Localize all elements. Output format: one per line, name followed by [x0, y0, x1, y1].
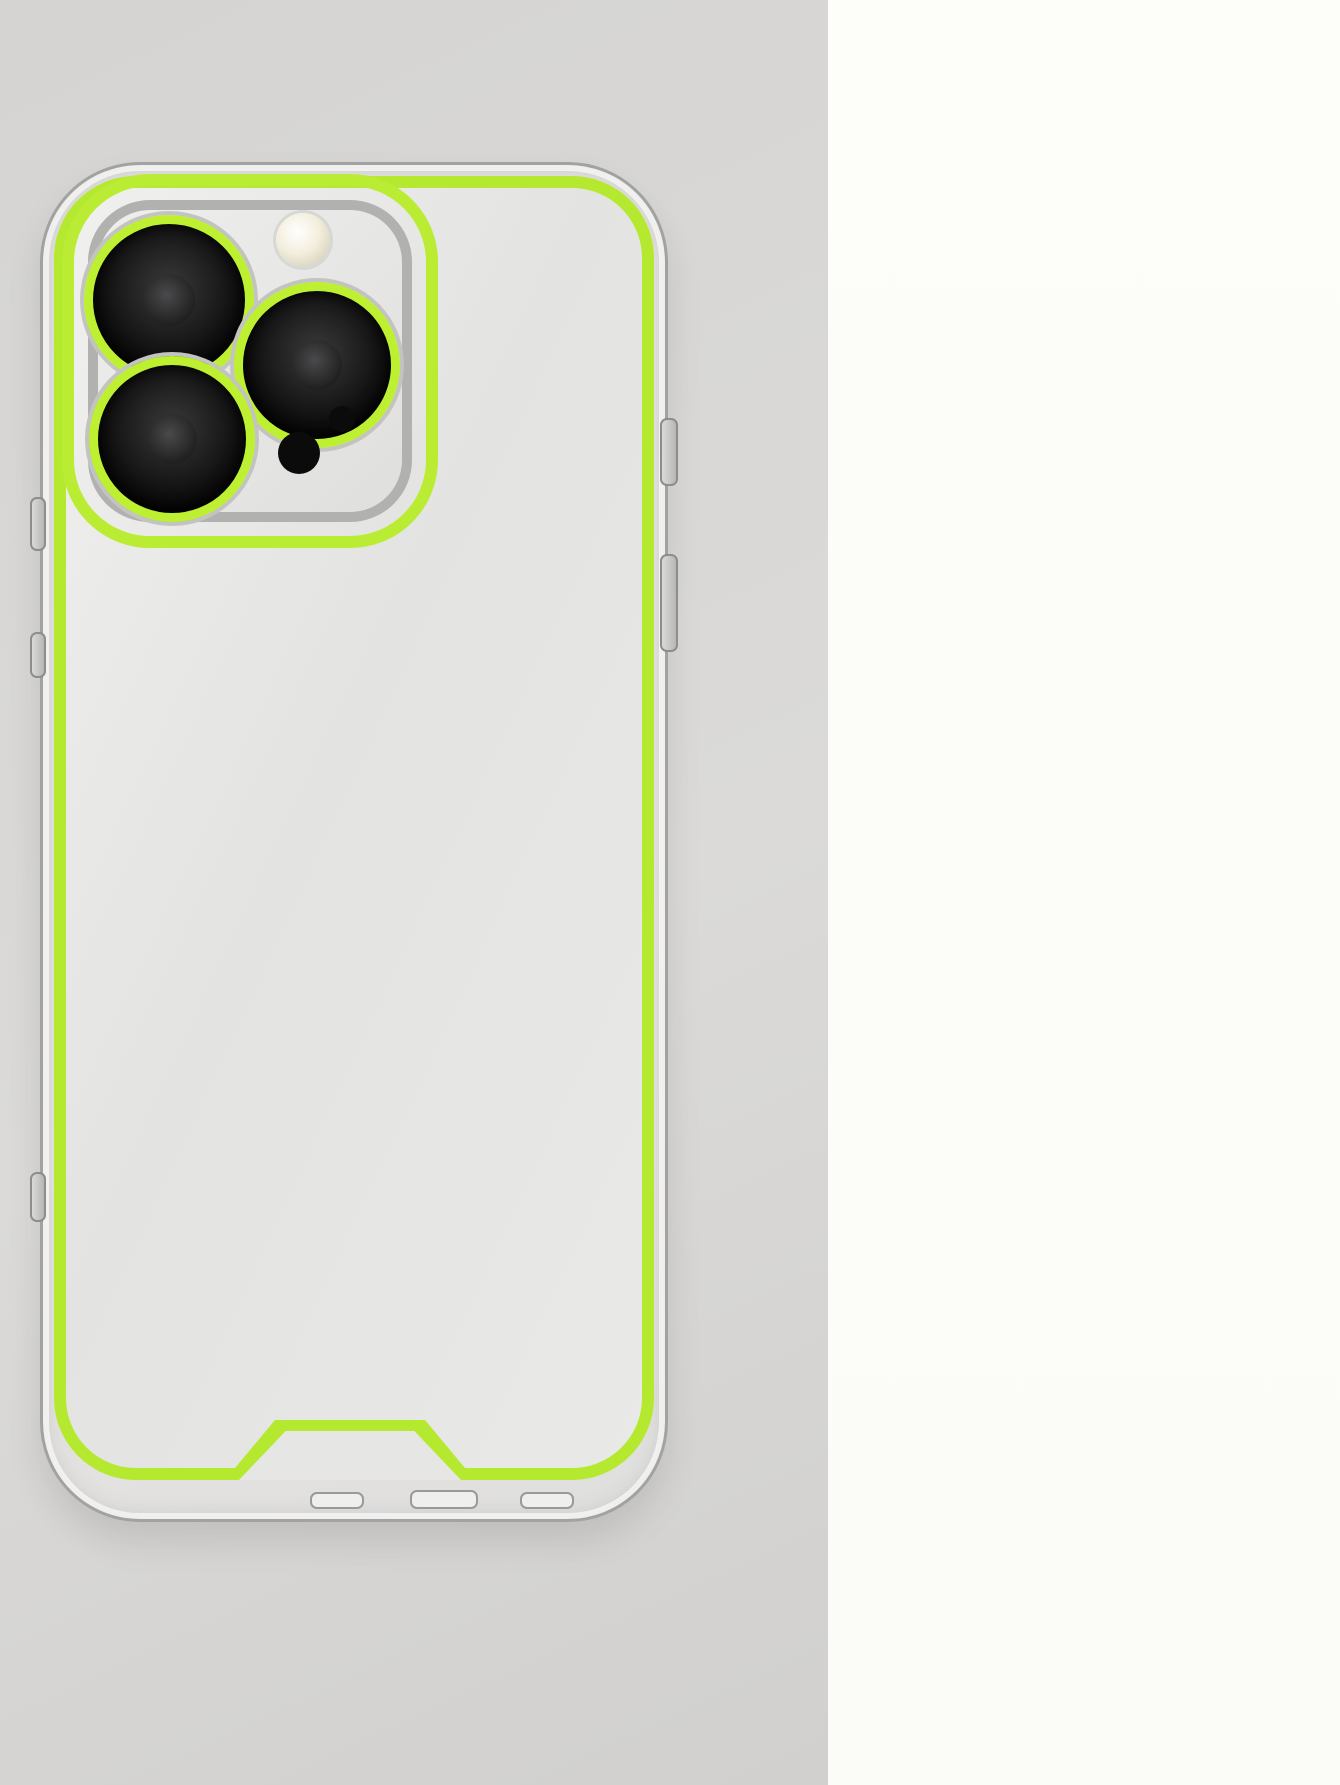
- side-nub: [30, 1172, 46, 1222]
- bottom-port-notch: [225, 1420, 475, 1480]
- speaker-slot: [310, 1492, 364, 1509]
- camera-lens-bottom-left: [89, 356, 255, 522]
- charging-port-slot: [410, 1490, 478, 1509]
- mute-switch: [30, 497, 46, 551]
- power-button: [660, 554, 678, 652]
- volume-button: [660, 418, 678, 486]
- lidar-sensor-dot: [329, 406, 355, 432]
- side-nub: [30, 632, 46, 678]
- camera-lens-right: [234, 282, 400, 448]
- info-pane: The hole is on the left side of the phon…: [828, 0, 1340, 1785]
- product-photo-pane: [0, 0, 828, 1785]
- phone-case-product-photo: [40, 162, 668, 1522]
- camera-module: [62, 174, 438, 548]
- product-infographic: The hole is on the left side of the phon…: [0, 0, 1340, 1785]
- speaker-slot: [520, 1492, 574, 1509]
- flash-led: [276, 213, 330, 267]
- microphone-dot: [278, 432, 320, 474]
